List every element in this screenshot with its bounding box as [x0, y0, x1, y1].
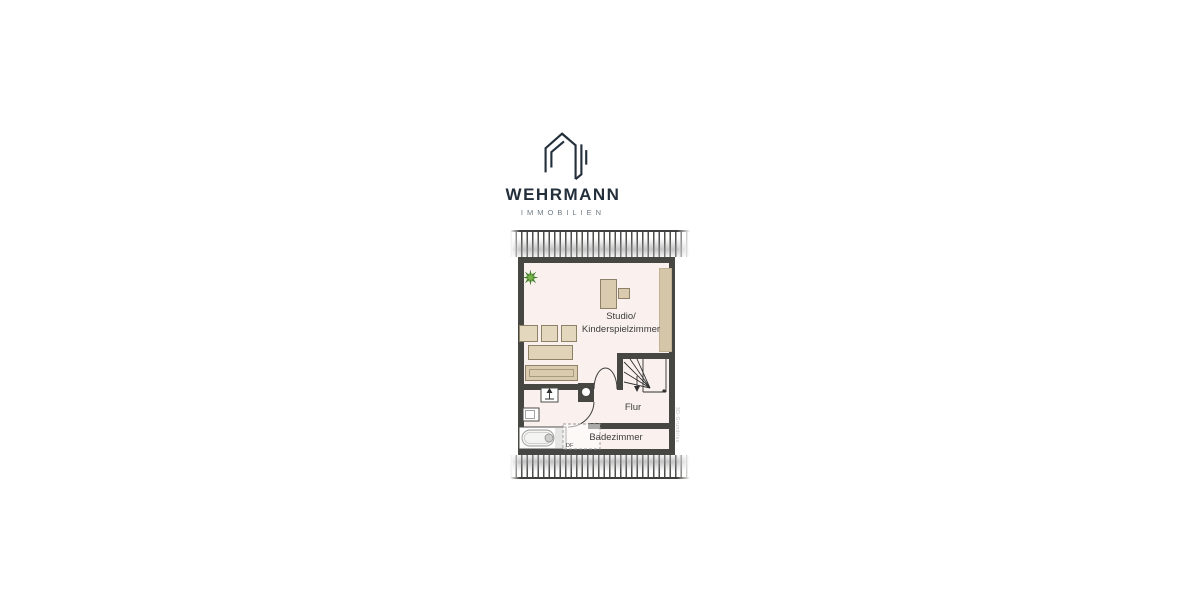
- roof-window-label: DF: [566, 440, 580, 453]
- room-label-studio-line2: Kinderspielzimmer: [570, 324, 672, 337]
- brand-tagline: IMMOBILIEN: [498, 208, 628, 217]
- logo: WEHRMANN IMMOBILIEN: [498, 124, 628, 217]
- stair-line-dot: [662, 389, 665, 392]
- door-arc-bathroom: [568, 402, 594, 427]
- brand-name: WEHRMANN: [498, 185, 628, 205]
- room-label-studio: Studio/ Kinderspielzimmer: [570, 311, 672, 336]
- stair-direction-arrowhead: [634, 386, 640, 392]
- watermark: 3D-Grundriss: [674, 407, 680, 443]
- floorplan-page: WEHRMANN IMMOBILIEN: [0, 0, 1200, 600]
- winder-stairs-icon: [624, 359, 666, 392]
- house-outline-icon: [532, 124, 594, 184]
- door-arc-studio: [594, 368, 617, 389]
- room-label-studio-line1: Studio/: [570, 311, 672, 324]
- room-label-flur: Flur: [616, 402, 650, 415]
- bathtub-faucet: [545, 434, 553, 442]
- room-label-badezimmer: Badezimmer: [580, 432, 652, 445]
